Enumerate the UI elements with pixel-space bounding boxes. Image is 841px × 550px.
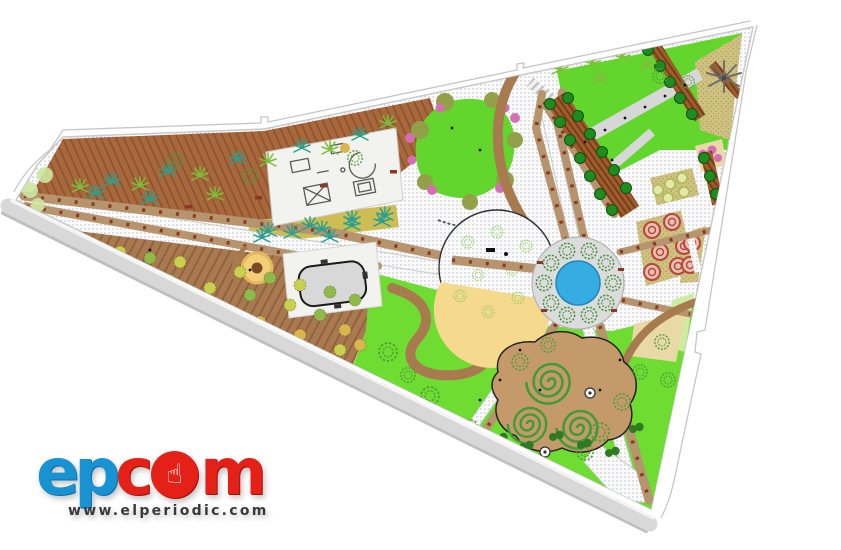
logo-url: www.elperiodic.com — [68, 503, 269, 519]
epcom-logo: epc☝m www.elperiodic.com — [36, 444, 269, 519]
logo-wordmark: epc☝m — [36, 444, 269, 502]
hand-cursor-icon: ☝ — [151, 451, 198, 498]
lamp-post-icon — [540, 447, 550, 457]
logo-text-m: m — [200, 436, 262, 510]
logo-text-c: c — [115, 436, 148, 510]
logo-o-badge: ☝ — [151, 451, 198, 498]
spiral-garden — [492, 332, 636, 457]
park-master-plan-page: epc☝m www.elperiodic.com — [0, 0, 841, 550]
logo-text-ep: ep — [36, 436, 115, 510]
lamp-post-icon — [585, 388, 595, 398]
rock-icon — [552, 34, 579, 56]
central-plaza — [532, 237, 624, 329]
central-pond — [556, 261, 600, 305]
